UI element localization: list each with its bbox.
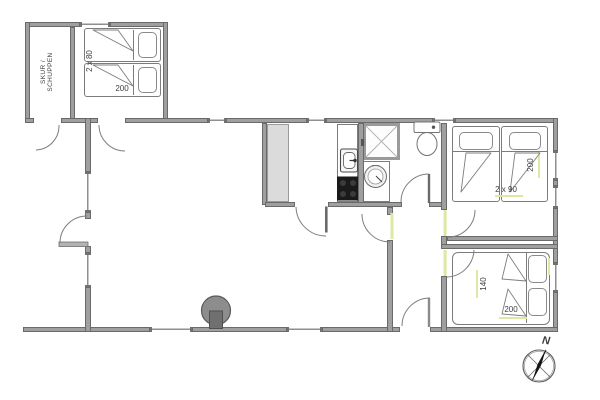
window (150, 327, 192, 332)
window (208, 118, 226, 123)
wall (265, 202, 295, 207)
wall (61, 118, 98, 123)
bed-width-label: 2 x 90 (484, 184, 528, 195)
window-accent (548, 258, 550, 275)
pillow (528, 255, 547, 283)
room-label-shed: SKUR / SCHUPPEN (27, 39, 67, 105)
door-arc (36, 125, 59, 150)
bed-head-divider (133, 30, 134, 60)
door-arc (362, 214, 390, 242)
floorplan: SKUR / SCHUPPEN 2 x 80 200 2 x 90 200 14… (0, 0, 600, 400)
toilet (414, 122, 440, 156)
dimension-line (476, 270, 478, 298)
compass-rose (523, 349, 555, 382)
window (553, 186, 558, 208)
tall-cabinet (267, 124, 289, 202)
window (80, 22, 110, 27)
wall (441, 276, 447, 332)
door-arc (447, 210, 475, 237)
bed-length-label: 200 (107, 84, 137, 94)
door-arc (402, 298, 430, 326)
shower-cabin (363, 123, 400, 160)
window (85, 253, 91, 287)
wall (387, 207, 393, 215)
door-arc (401, 174, 429, 202)
wall (70, 27, 75, 123)
window (287, 327, 322, 332)
shed-label-line1: SKUR / (40, 60, 47, 84)
door-leaf (428, 298, 430, 327)
door-arc (296, 207, 326, 236)
kitchen-counter (337, 124, 358, 202)
bed-length-label: 200 (526, 143, 536, 187)
wall-post (85, 212, 91, 219)
bed-width-label: 140 (479, 262, 489, 306)
washbasin-counter (361, 161, 390, 202)
door-leaf (444, 210, 447, 236)
wall-post (85, 246, 91, 253)
window (553, 151, 558, 180)
bed-length-label: 200 (496, 305, 526, 315)
bed-head-divider (526, 253, 527, 323)
dimension-line (538, 152, 540, 178)
wall (85, 118, 91, 172)
window (433, 118, 455, 123)
pillow (509, 132, 541, 150)
pillow (528, 288, 547, 316)
dimension-line (495, 195, 523, 197)
wall (553, 118, 558, 151)
wall (110, 22, 168, 27)
wall (262, 123, 267, 205)
wall (441, 123, 447, 210)
wall (163, 22, 168, 123)
bed-head-divider (502, 151, 547, 152)
compass-north-label: N (537, 334, 554, 349)
door-leaf (325, 207, 328, 233)
wall (430, 327, 558, 332)
door-leaf (59, 242, 88, 247)
dimension-line (499, 317, 527, 319)
wood-stove (202, 296, 231, 329)
door-arc (99, 125, 125, 151)
wall (455, 118, 558, 123)
wall (441, 244, 558, 249)
wall (387, 240, 393, 332)
bed-width-label: 2 x 80 (85, 39, 95, 83)
wall (326, 118, 433, 123)
wall (553, 292, 558, 332)
window (553, 263, 558, 292)
wall-post (441, 236, 447, 245)
shed-label-line2: SCHUPPEN (47, 52, 54, 91)
wall (447, 236, 558, 241)
wall (358, 123, 364, 207)
wall (125, 118, 208, 123)
wall (192, 327, 287, 332)
pillow (138, 67, 157, 93)
bed-head-divider (453, 151, 499, 152)
window (307, 118, 326, 123)
pillow (459, 132, 493, 150)
wall (25, 118, 34, 123)
window (85, 172, 91, 212)
door-arc (60, 216, 87, 243)
pillow (138, 32, 157, 58)
door-leaf (428, 174, 430, 203)
wall (85, 287, 91, 332)
door-leaf (391, 213, 394, 239)
door-leaf (444, 250, 447, 276)
compass-needle (533, 349, 547, 381)
